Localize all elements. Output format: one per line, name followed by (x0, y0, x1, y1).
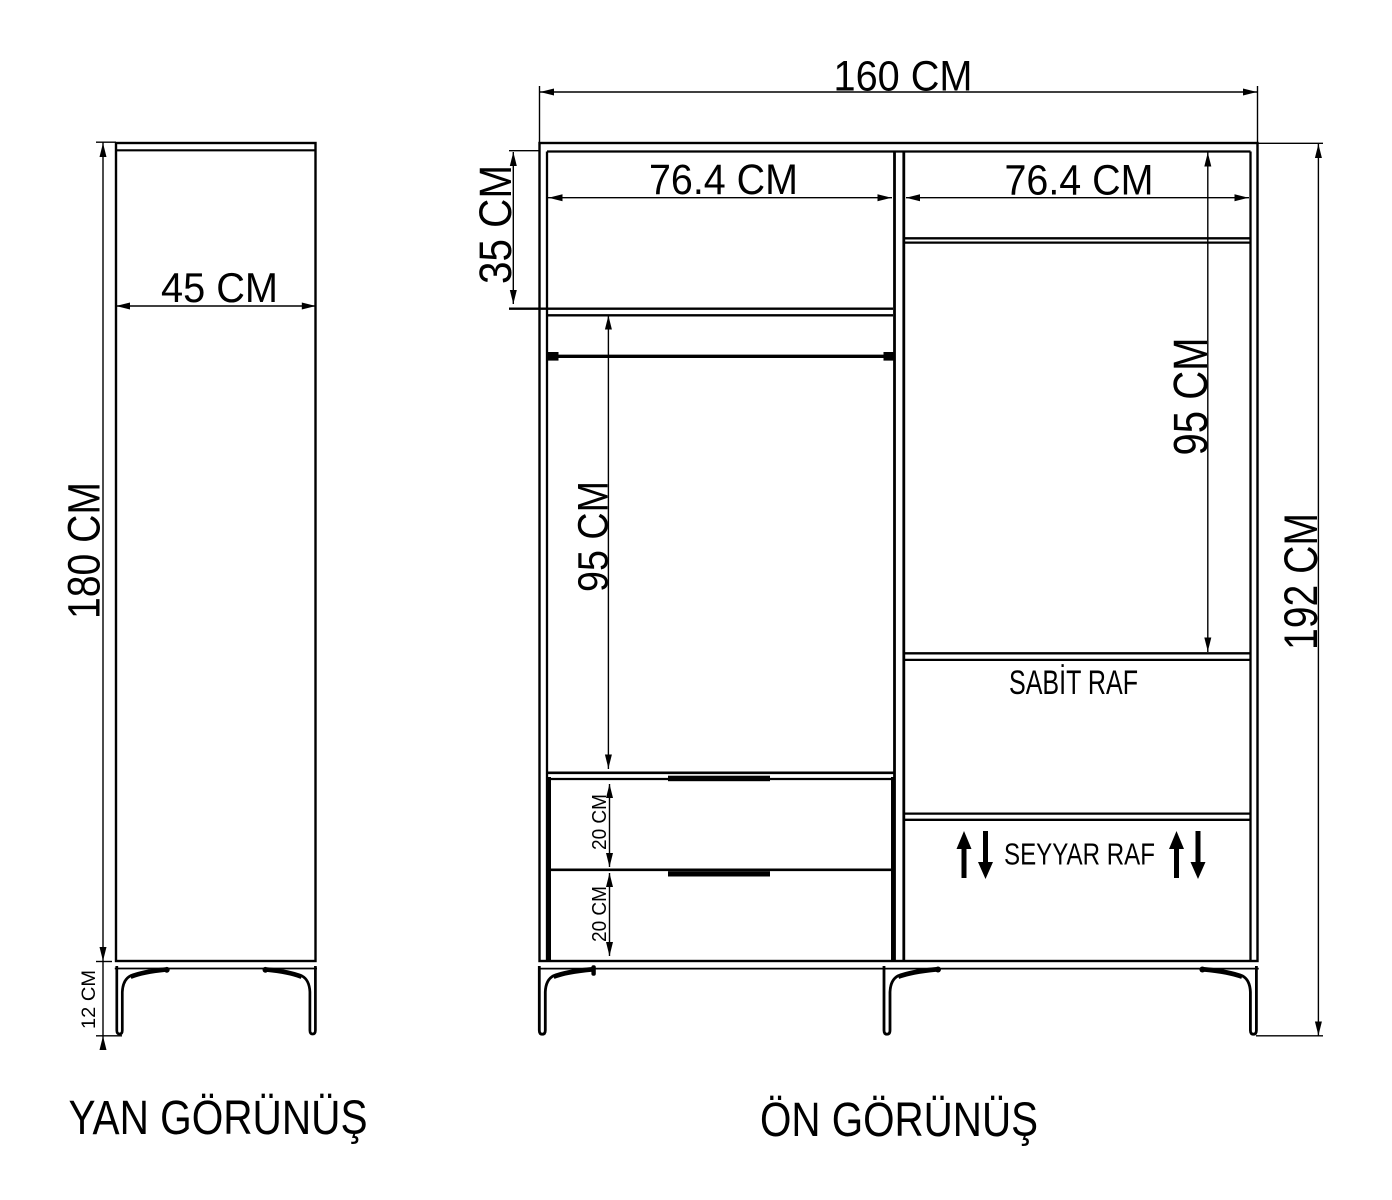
svg-text:SABİT RAF: SABİT RAF (1009, 664, 1138, 702)
svg-text:95 CM: 95 CM (1165, 338, 1218, 456)
svg-text:76.4 CM: 76.4 CM (649, 156, 798, 204)
svg-text:SEYYAR RAF: SEYYAR RAF (1004, 837, 1155, 872)
svg-text:180 CM: 180 CM (59, 482, 110, 619)
svg-text:95 CM: 95 CM (570, 481, 618, 592)
svg-text:YAN GÖRÜNÜŞ: YAN GÖRÜNÜŞ (69, 1092, 368, 1145)
svg-text:160 CM: 160 CM (834, 53, 973, 101)
svg-text:ÖN GÖRÜNÜŞ: ÖN GÖRÜNÜŞ (760, 1094, 1038, 1147)
svg-text:35 CM: 35 CM (470, 165, 521, 284)
svg-text:12 CM: 12 CM (79, 970, 100, 1029)
svg-text:76.4 CM: 76.4 CM (1005, 157, 1154, 205)
svg-text:20 CM: 20 CM (589, 886, 611, 942)
svg-text:45 CM: 45 CM (161, 264, 278, 311)
svg-text:192 CM: 192 CM (1274, 513, 1327, 650)
svg-text:20 CM: 20 CM (589, 794, 611, 850)
